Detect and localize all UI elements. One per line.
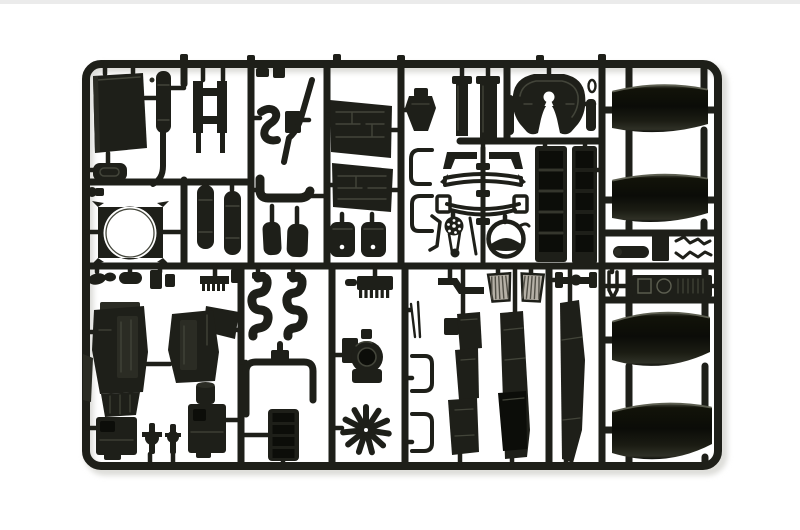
fender-lower-front (612, 313, 710, 366)
photo-top-edge (0, 0, 800, 4)
floor-panel-lower (332, 163, 393, 212)
fender-upper-front (612, 85, 708, 132)
sprue-graphic (0, 0, 800, 530)
floor-panel-upper (330, 100, 392, 158)
air-cylinder-small (613, 246, 649, 258)
intake-manifold (268, 409, 299, 461)
radiator-core-left (535, 146, 567, 262)
hose-clamp-small (87, 187, 104, 197)
cab-roof-panel (93, 73, 147, 153)
cab-step-plate (93, 163, 127, 181)
dashboard-panel (632, 275, 712, 297)
bracket-plate-small (652, 233, 669, 261)
radiator-core-right (572, 146, 597, 264)
model-kit-sprue-photo (0, 0, 800, 530)
fender-upper-rear (612, 175, 708, 222)
